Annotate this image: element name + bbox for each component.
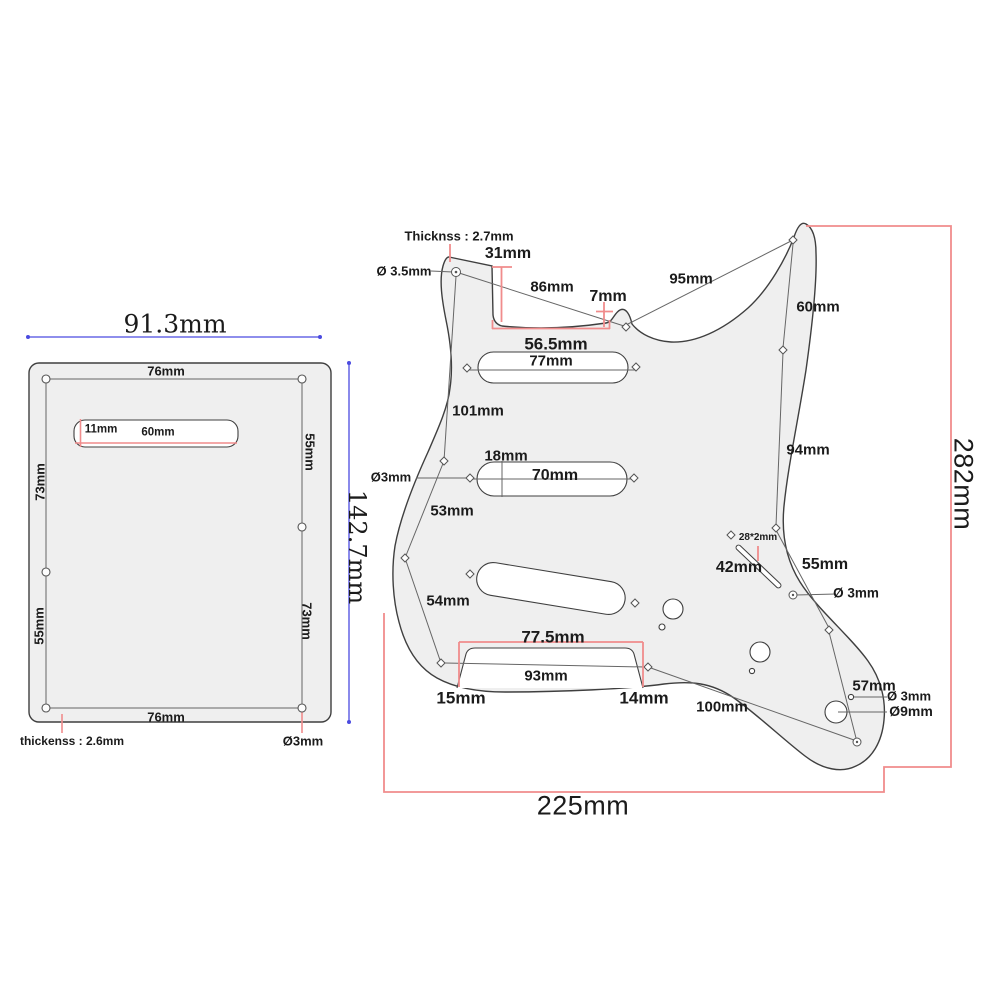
backplate-thickness-label: thickenss : 2.6mm — [20, 735, 124, 747]
pilot-hole-2 — [749, 668, 754, 673]
bridge-outer-width-label: 77.5mm — [521, 629, 584, 646]
right-hole-label: Ø 3mm — [833, 586, 879, 600]
backplate-slot-width-label: 60mm — [141, 427, 174, 439]
backplate-top-edge-label: 76mm — [147, 365, 185, 378]
backplate-right-lower-label: 73mm — [301, 602, 314, 640]
backplate-left-lower-label: 55mm — [33, 607, 46, 645]
right-upper-label: 60mm — [796, 300, 839, 315]
neck-diagonal-label: 86mm — [530, 280, 573, 295]
neck-pickup-width-label: 77mm — [529, 354, 572, 369]
backplate-right-upper-label: 55mm — [304, 433, 317, 471]
bridge-inner-width-label: 93mm — [524, 669, 567, 684]
bottom-span-label: 100mm — [696, 700, 748, 715]
backplate-height-label: 142.7mm — [345, 490, 369, 604]
pickguard-dimension-drawing: 91.3mm 76mm 11mm 60mm 73mm 55mm 55mm 73m… — [0, 0, 1002, 1002]
pilot-hole-1 — [659, 624, 665, 630]
switch-length-label: 42mm — [716, 560, 762, 576]
pickguard-top-hole-label: Ø 3.5mm — [377, 265, 432, 278]
right-mid-label: 55mm — [802, 557, 848, 573]
horn-span-label: 95mm — [669, 272, 712, 287]
mid-pickup-width-label: 70mm — [532, 468, 578, 484]
left-hole-label: Ø3mm — [371, 471, 411, 484]
left-mid-label: 53mm — [430, 504, 473, 519]
right-side-label: 94mm — [786, 443, 829, 458]
left-upper-label: 101mm — [452, 404, 504, 419]
neck-pocket-depth-label: 31mm — [485, 246, 531, 262]
pickguard-thickness-label: Thicknss : 2.7mm — [404, 230, 513, 243]
backplate-slot-height-label: 11mm — [85, 424, 118, 436]
total-width-label: 225mm — [537, 793, 630, 820]
neck-pocket-width-label: 56.5mm — [524, 336, 587, 353]
backplate-left-upper-label: 73mm — [34, 463, 47, 501]
backplate-outline — [29, 363, 331, 722]
bridge-left-depth-label: 15mm — [436, 690, 485, 707]
jack-hole-label: Ø9mm — [889, 704, 933, 718]
pot-hole-1 — [663, 599, 683, 619]
jack-screw-hole — [848, 694, 853, 699]
step-label: 7mm — [589, 289, 626, 305]
left-lower-label: 54mm — [426, 594, 469, 609]
total-height-label: 282mm — [950, 438, 977, 531]
switch-slot-label: 28*2mm — [739, 533, 777, 543]
pot-hole-2 — [750, 642, 770, 662]
drawing-geometry — [0, 0, 1002, 1002]
backplate-drawing — [26, 335, 351, 733]
bridge-right-depth-label: 14mm — [619, 690, 668, 707]
backplate-screw-hole-label: Ø3mm — [283, 735, 323, 748]
jack-screw-hole-label: Ø 3mm — [887, 690, 931, 703]
mid-pickup-height-label: 18mm — [484, 449, 527, 464]
backplate-width-label: 91.3mm — [123, 312, 226, 337]
backplate-bottom-edge-label: 76mm — [147, 711, 185, 724]
